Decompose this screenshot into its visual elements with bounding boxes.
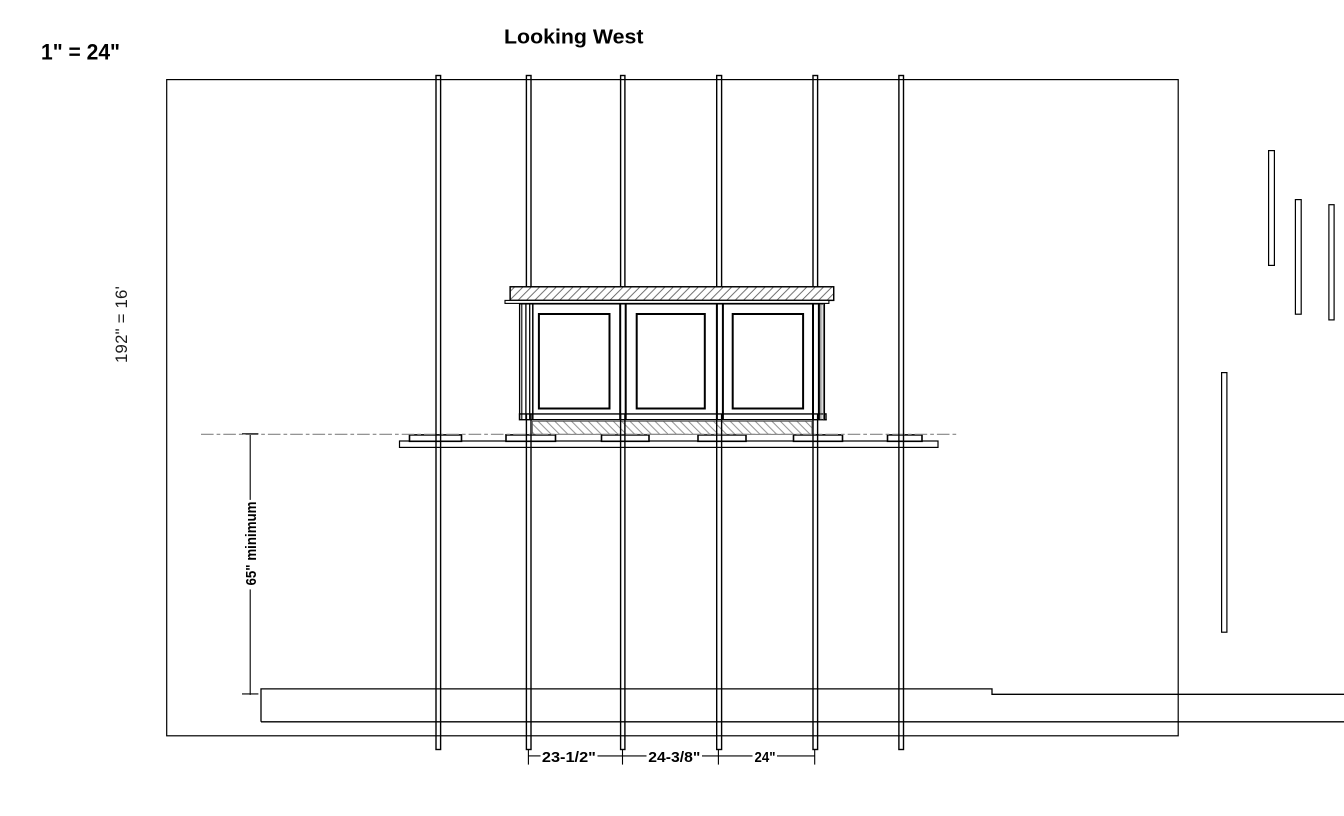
svg-text:23-1/2": 23-1/2" xyxy=(542,750,596,766)
svg-text:24": 24" xyxy=(755,750,776,766)
svg-text:Looking West: Looking West xyxy=(504,25,644,48)
svg-text:1" = 24": 1" = 24" xyxy=(41,40,120,65)
svg-text:24-3/8": 24-3/8" xyxy=(648,750,700,766)
svg-text:65" minimum: 65" minimum xyxy=(244,501,260,585)
svg-text:192" = 16': 192" = 16' xyxy=(112,286,131,363)
